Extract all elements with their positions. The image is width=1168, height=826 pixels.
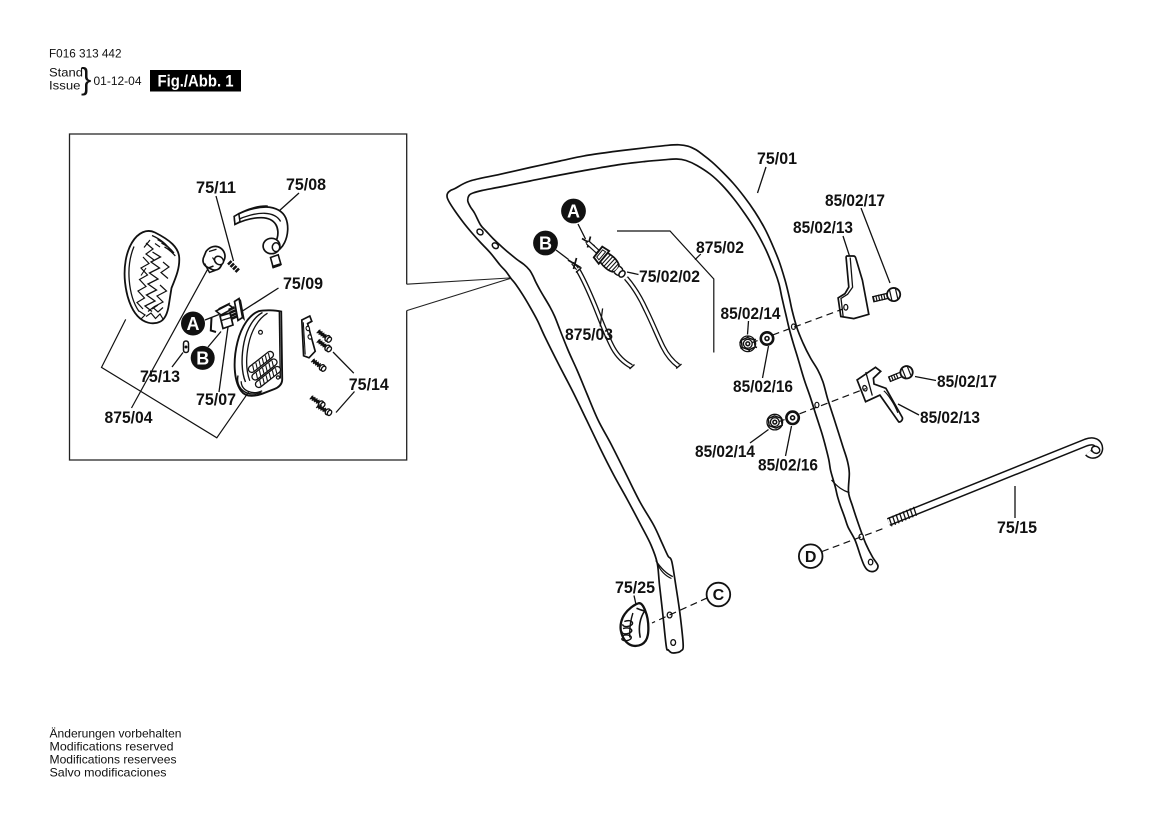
svg-text:875/02: 875/02: [696, 238, 744, 257]
svg-text:Fig./Abb. 1: Fig./Abb. 1: [158, 72, 234, 91]
svg-text:85/02/14: 85/02/14: [721, 304, 781, 323]
svg-text:Stand: Stand: [49, 67, 83, 80]
svg-text:875/03: 875/03: [565, 325, 613, 344]
svg-text:}: }: [81, 61, 91, 96]
svg-text:85/02/13: 85/02/13: [793, 218, 853, 237]
svg-text:85/02/14: 85/02/14: [695, 442, 755, 461]
svg-text:875/04: 875/04: [105, 408, 153, 427]
svg-text:75/15: 75/15: [997, 518, 1037, 537]
svg-text:75/09: 75/09: [283, 274, 323, 293]
svg-text:D: D: [805, 549, 817, 566]
svg-text:B: B: [539, 234, 552, 254]
svg-text:01-12-04: 01-12-04: [94, 75, 143, 88]
svg-text:Salvo modificaciones: Salvo modificaciones: [50, 767, 167, 780]
svg-text:75/01: 75/01: [757, 149, 797, 168]
svg-text:A: A: [187, 314, 200, 334]
svg-text:75/07: 75/07: [196, 390, 236, 409]
svg-text:A: A: [567, 202, 580, 222]
svg-text:75/08: 75/08: [286, 175, 326, 194]
svg-text:Issue: Issue: [49, 80, 81, 93]
svg-text:85/02/16: 85/02/16: [733, 377, 793, 396]
svg-text:C: C: [713, 587, 725, 604]
svg-text:75/14: 75/14: [349, 375, 390, 394]
svg-text:85/02/17: 85/02/17: [937, 372, 997, 391]
svg-text:85/02/17: 85/02/17: [825, 191, 885, 210]
svg-text:B: B: [196, 348, 209, 368]
svg-text:85/02/13: 85/02/13: [920, 408, 980, 427]
svg-text:Modifications reservees: Modifications reservees: [50, 754, 177, 767]
svg-text:75/25: 75/25: [615, 578, 655, 597]
svg-text:Änderungen vorbehalten: Änderungen vorbehalten: [50, 728, 182, 741]
svg-text:75/02/02: 75/02/02: [639, 267, 700, 286]
svg-text:75/13: 75/13: [140, 367, 180, 386]
svg-text:F016 313 442: F016 313 442: [49, 48, 122, 61]
svg-text:75/11: 75/11: [196, 178, 236, 197]
svg-text:85/02/16: 85/02/16: [758, 456, 818, 475]
svg-text:Modifications reserved: Modifications reserved: [50, 741, 174, 754]
